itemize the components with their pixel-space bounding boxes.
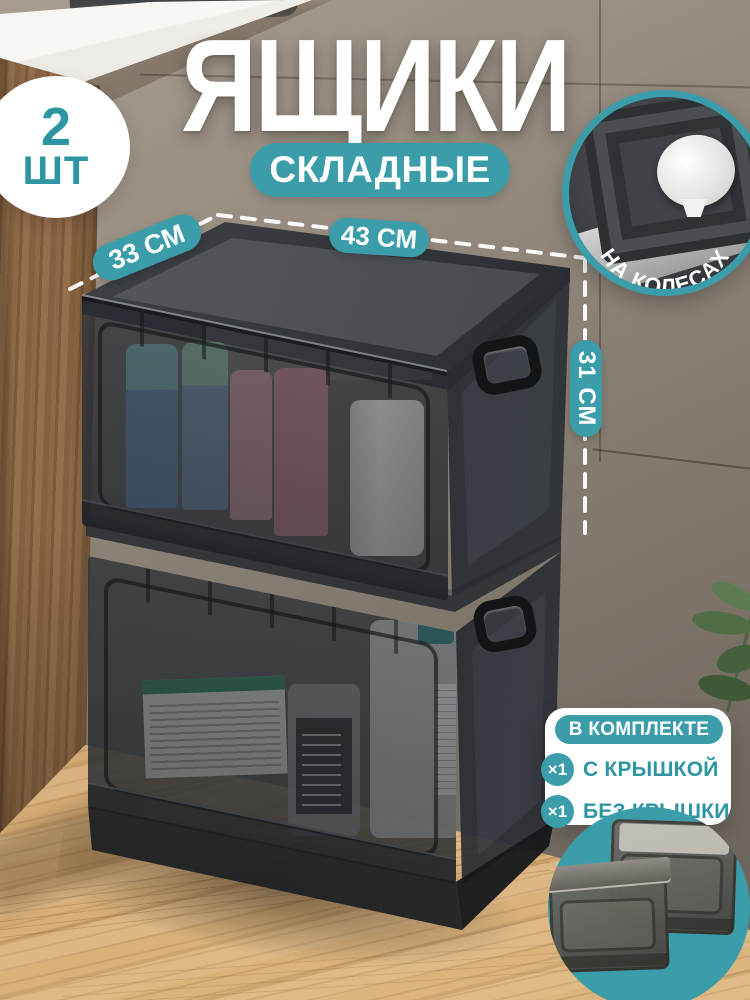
quantity-chip: ×1: [541, 753, 574, 786]
included-set-photo: [548, 807, 750, 1000]
quantity-count: 2: [41, 103, 71, 152]
included-item-with-lid: ×1 С КРЫШКОЙ: [555, 753, 723, 786]
quantity-unit: ШТ: [23, 151, 90, 191]
included-item-label: С КРЫШКОЙ: [583, 758, 719, 782]
height-dimension-label: 31 СМ: [570, 340, 602, 437]
quantity-chip: ×1: [541, 795, 574, 828]
width-dimension-label: 43 СМ: [328, 217, 430, 259]
product-subtitle: СКЛАДНЫЕ: [250, 143, 510, 197]
included-header: В КОМПЛЕКТЕ: [555, 715, 723, 744]
wheels-curved-label: НА КОЛЕСАХ: [569, 97, 750, 289]
mini-crate-with-lid: [548, 863, 670, 973]
svg-text:НА КОЛЕСАХ: НА КОЛЕСАХ: [595, 244, 734, 289]
product-banner: 2 ШТ ЯЩИКИ СКЛАДНЫЕ 33 СМ 43 СМ 31 СМ НА…: [0, 0, 750, 1000]
wheels-photo-inset: НА КОЛЕСАХ: [562, 90, 750, 296]
